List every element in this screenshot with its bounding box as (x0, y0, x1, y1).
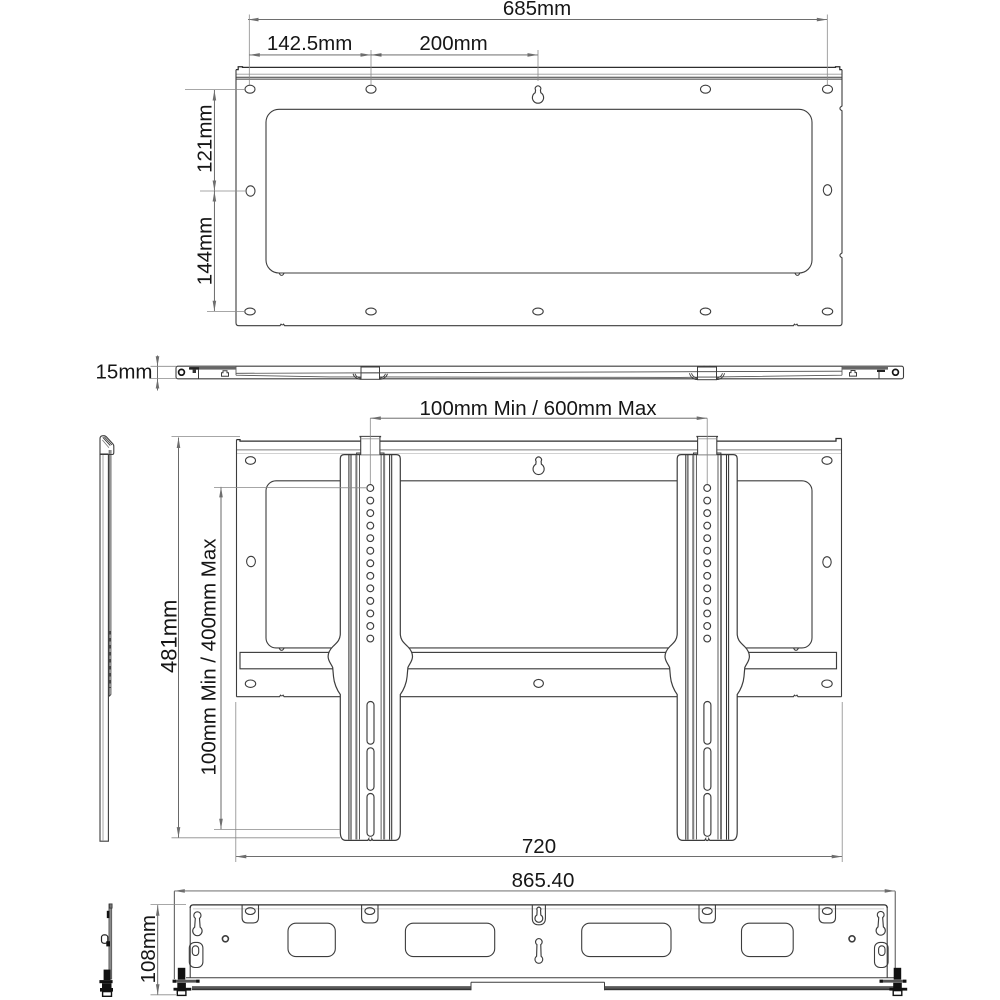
svg-text:720: 720 (522, 835, 556, 858)
svg-text:865.40: 865.40 (512, 869, 575, 892)
svg-text:144mm: 144mm (193, 217, 216, 285)
svg-text:200mm: 200mm (419, 32, 487, 55)
svg-text:108mm: 108mm (137, 915, 160, 983)
svg-text:685mm: 685mm (503, 0, 571, 20)
svg-text:121mm: 121mm (193, 105, 216, 173)
svg-text:481mm: 481mm (156, 600, 181, 673)
svg-text:100mm Min / 400mm Max: 100mm Min / 400mm Max (197, 538, 220, 776)
svg-text:100mm Min / 600mm Max: 100mm Min / 600mm Max (420, 397, 658, 420)
svg-text:142.5mm: 142.5mm (267, 32, 352, 55)
svg-text:15mm: 15mm (96, 360, 153, 383)
